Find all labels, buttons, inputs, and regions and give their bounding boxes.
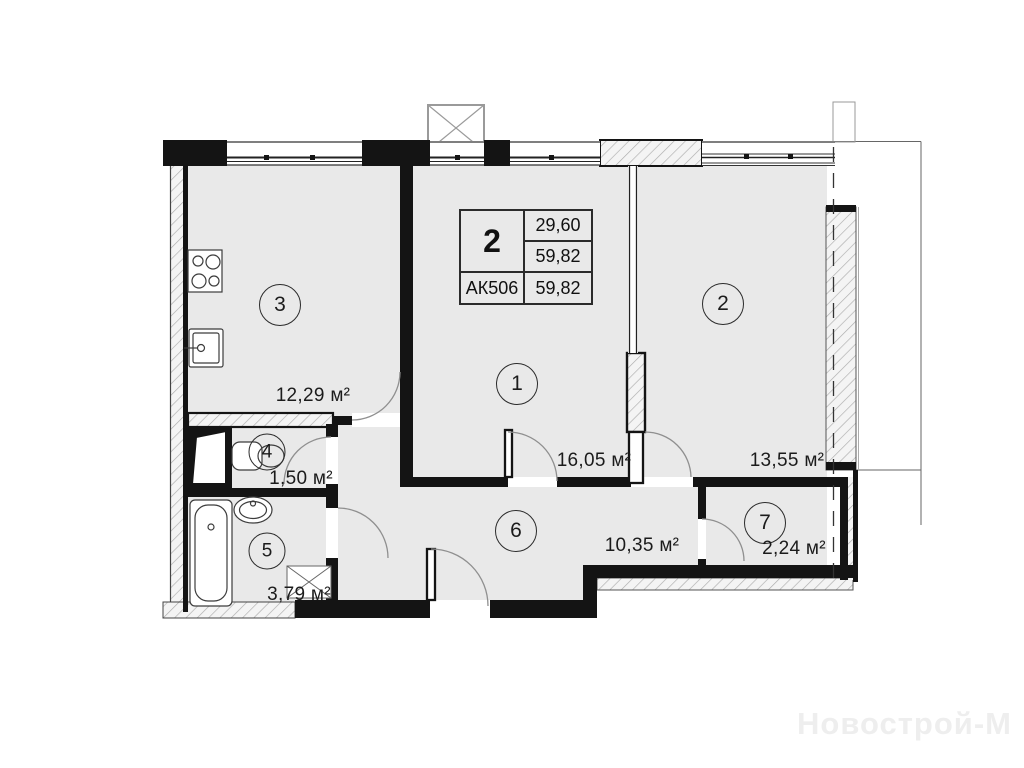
duct-shaft	[192, 431, 226, 484]
bathtub-icon	[190, 500, 232, 606]
window-room1-right	[510, 141, 600, 165]
window-room2	[702, 141, 835, 166]
stove-icon	[188, 250, 222, 292]
floor-area	[188, 160, 827, 602]
window-room1-left	[430, 141, 484, 165]
floor-plan-page: 2 29,60 59,82 АК506 59,82 1 2 3 4 5 6 7 …	[0, 0, 1024, 768]
floor-plan-drawing	[0, 0, 1024, 768]
partition-room1-room2	[628, 166, 638, 353]
kitchen-sink-icon	[184, 329, 223, 367]
vent-cross-icon	[287, 566, 331, 598]
washbasin-icon	[234, 497, 272, 523]
window-kitchen	[227, 141, 362, 165]
windows	[227, 141, 835, 166]
